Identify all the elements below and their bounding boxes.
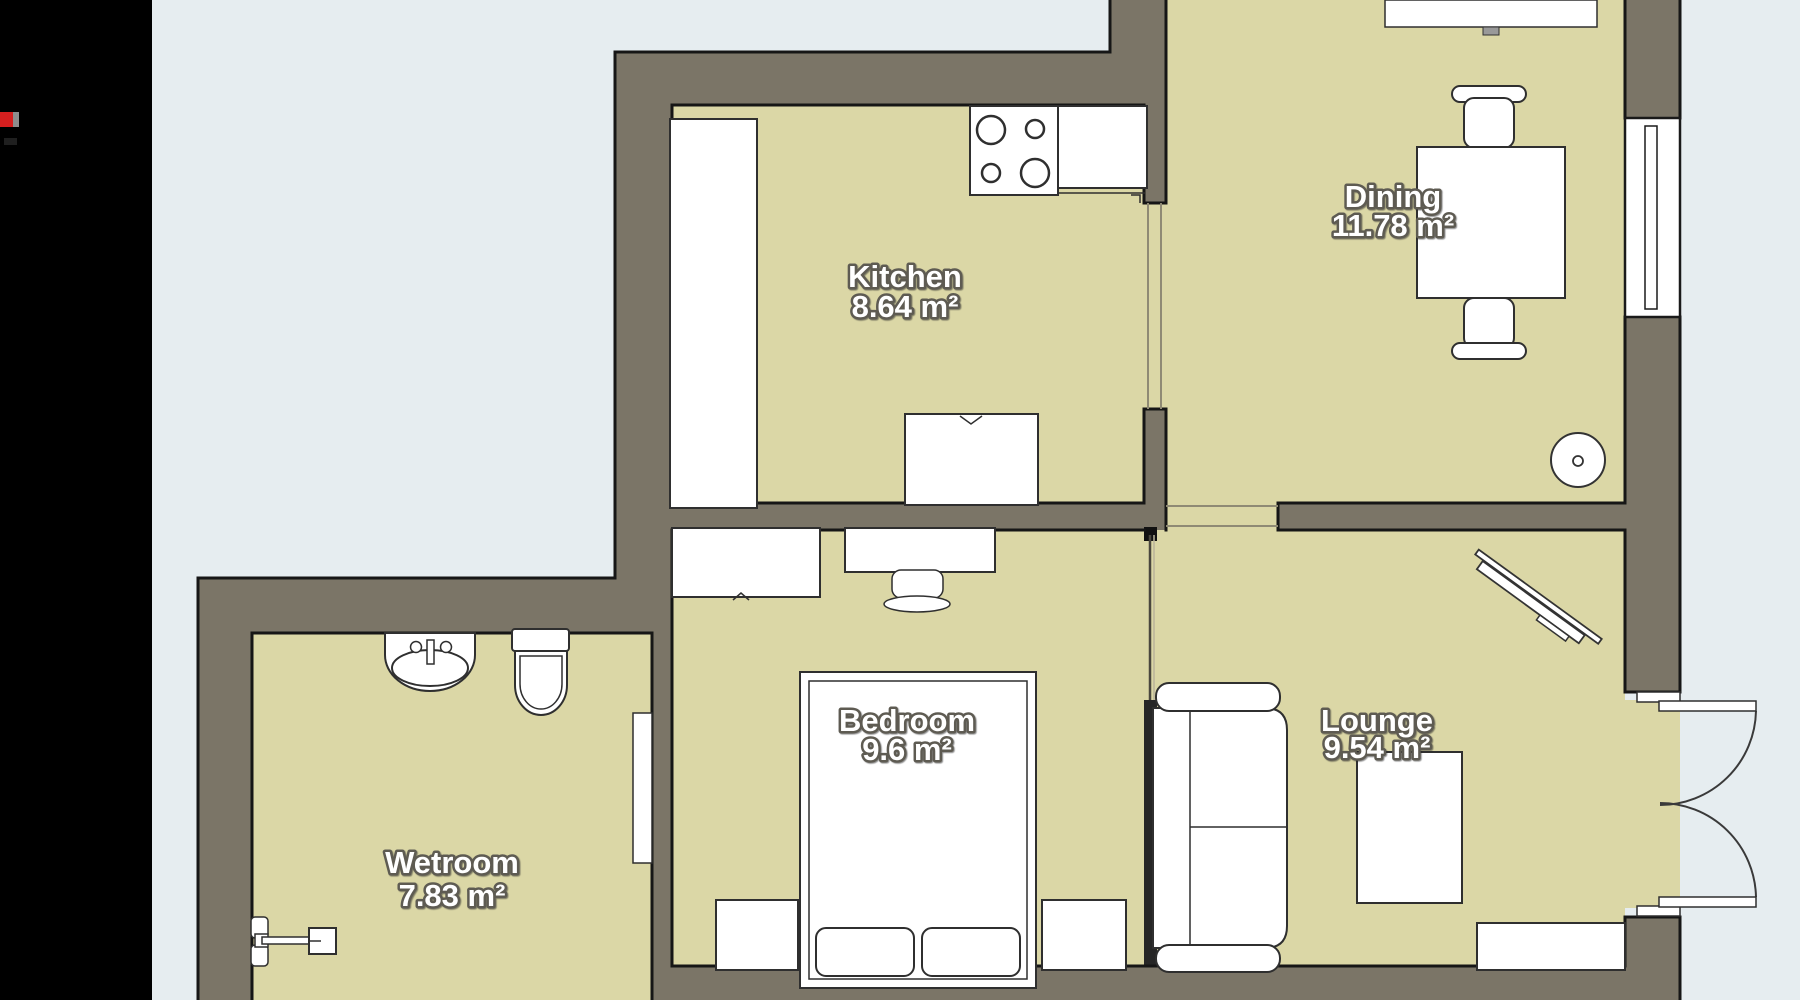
- wall-east-upper[interactable]: [1625, 0, 1680, 118]
- toilet[interactable]: [512, 629, 569, 715]
- wall-dining-west-upper[interactable]: [1110, 0, 1166, 105]
- floor-plan-canvas[interactable]: Kitchen 8.64 m² Dining 11.78 m² Bedroom …: [0, 0, 1800, 1000]
- floor-plant[interactable]: [1551, 433, 1605, 487]
- sidebar: [0, 0, 152, 1000]
- kitchen-tall-cabinet[interactable]: [670, 119, 757, 508]
- desk-chair[interactable]: [884, 570, 950, 612]
- wall-wetroom-west[interactable]: [198, 633, 252, 1000]
- wardrobe[interactable]: [672, 528, 820, 597]
- dining-chair-bottom[interactable]: [1452, 298, 1526, 359]
- pillow-left: [816, 928, 914, 976]
- floor-planner-viewport: Kitchen 8.64 m² Dining 11.78 m² Bedroom …: [0, 0, 1800, 1000]
- logo-mark-faint: [4, 138, 17, 145]
- wall-west-exterior[interactable]: [615, 52, 672, 633]
- dining-area-label: 11.78 m²: [1332, 208, 1454, 243]
- wall-kitchen-dining-divider-stub[interactable]: [1144, 409, 1166, 530]
- dining-window[interactable]: [1625, 118, 1680, 317]
- kitchen-counter-south[interactable]: [905, 414, 1038, 505]
- sofa-armrest-top: [1156, 683, 1280, 711]
- sofa-armrest-bottom: [1156, 945, 1280, 972]
- wall-dining-lounge-divider[interactable]: [1278, 503, 1625, 530]
- door-leaf-top[interactable]: [1659, 701, 1756, 711]
- sink-tap-left: [411, 642, 422, 653]
- pillow-right: [922, 928, 1020, 976]
- door-leaf-bottom[interactable]: [1659, 897, 1756, 907]
- sideboard[interactable]: [1385, 0, 1597, 27]
- lounge-area-label: 9.54 m²: [1324, 730, 1431, 765]
- bedroom-area-label: 9.6 m²: [862, 732, 952, 767]
- nightstand-right[interactable]: [1042, 900, 1126, 970]
- sideboard-tab: [1483, 27, 1499, 35]
- wall-wetroom-north[interactable]: [198, 578, 672, 633]
- tv-stand[interactable]: [1477, 923, 1625, 970]
- kitchen-area-label: 8.64 m²: [852, 289, 959, 324]
- wall-wetroom-bedroom-divider[interactable]: [652, 633, 672, 966]
- nightstand-left[interactable]: [716, 900, 798, 970]
- logo-gray-icon: [13, 112, 19, 127]
- wetroom-label: Wetroom: [385, 845, 519, 880]
- wall-east-lower[interactable]: [1625, 917, 1680, 1000]
- wetroom-area-label: 7.83 m²: [399, 878, 506, 913]
- shower-valve-bottom: [251, 945, 268, 966]
- wall-east-middle[interactable]: [1625, 317, 1680, 692]
- sidebar-panel: [0, 0, 152, 1000]
- dining-chair-top[interactable]: [1452, 86, 1526, 148]
- sofa[interactable]: [1153, 683, 1287, 972]
- kitchen-counter-right[interactable]: [1058, 106, 1147, 188]
- sink-tap-right: [441, 642, 452, 653]
- coffee-table[interactable]: [1357, 752, 1462, 903]
- desk[interactable]: [845, 528, 995, 572]
- wall-kitchen-north[interactable]: [615, 52, 1110, 105]
- sink-spout: [427, 640, 434, 664]
- logo-red-icon: [0, 112, 13, 127]
- radiator-panel[interactable]: [633, 713, 652, 863]
